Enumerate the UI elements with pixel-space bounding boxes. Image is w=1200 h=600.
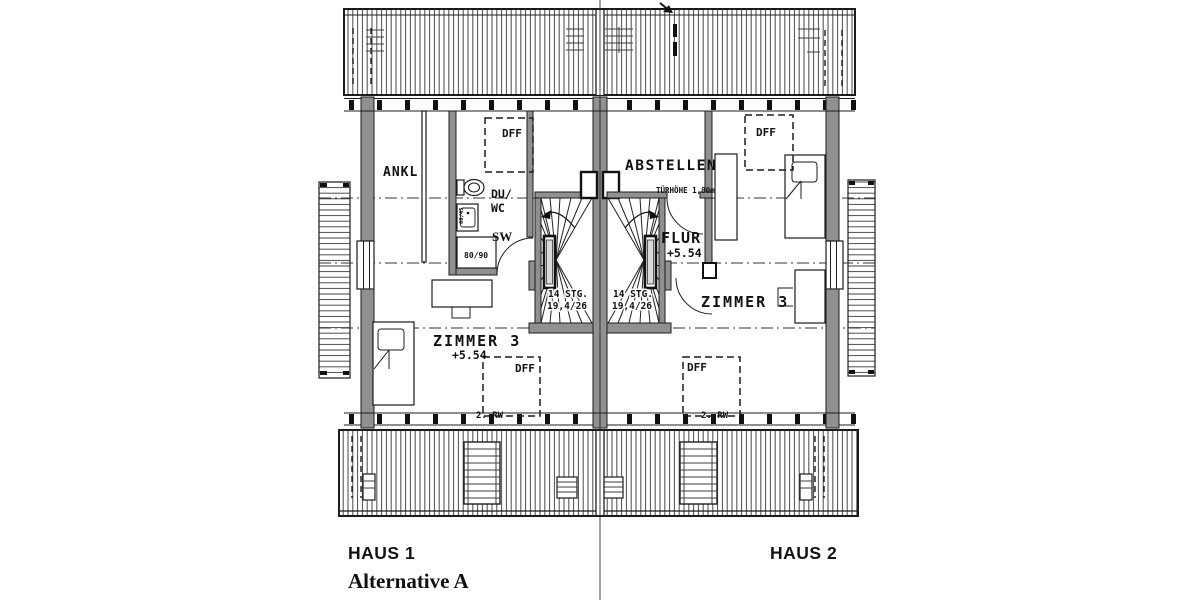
desk-haus2 [795,270,825,323]
bath-wall-right [527,111,533,237]
label-basin-size: 60/45 [459,207,465,224]
bath-wall-bottom [456,268,497,275]
outer-wall-right [826,111,843,413]
haus2-interior [603,111,825,416]
label-zimmer-h2: ZIMMER 3 [701,293,789,311]
roof-ladder-left [464,442,500,504]
title-haus2: HAUS 2 [770,543,837,563]
label-flur: FLUR [661,229,701,247]
label-rw-h2: 2. RW [701,411,729,421]
title-alternative: Alternative A [348,569,470,593]
eave-hatch-left [319,182,350,378]
label-stairs-h2-line2: 19,4/26 [612,301,652,312]
label-rw-h1: 2. RW [476,411,504,421]
bed-haus2 [785,155,825,238]
label-stairs-h1-line2: 19,4/26 [547,301,587,312]
duct-niche [703,263,716,278]
label-shower-size: 80/90 [464,251,488,260]
label-dff-h2-top: DFF [756,126,776,139]
window-left [357,241,374,289]
desk-haus1 [432,280,492,307]
label-level-h1: +5.54 [452,348,487,362]
window-right [826,241,843,289]
label-level-h2: +5.54 [667,246,702,260]
label-stairs-h2-line1: 14 STG. [613,289,653,300]
chair-haus1 [452,307,470,318]
bed-haus1 [373,322,414,405]
haus1-interior [373,111,597,416]
abstellen-wall [705,111,712,198]
closet-line [422,111,426,262]
label-sw: SW [492,229,512,244]
flur-wall [705,198,712,263]
label-door-height: TÜRHÖHE 1,80m [656,186,715,195]
label-du: DU/ [491,187,512,201]
label-wc: WC [491,201,505,215]
toilet [457,180,484,196]
title-haus1: HAUS 1 [348,543,415,563]
label-stairs-h1-line1: 14 STG. [548,289,588,300]
outer-wall-left [357,111,374,413]
floorplan-drawing: ANKL DFF DU/ WC SW 80/90 60/45 ZIMMER 3 … [0,0,1200,600]
label-abstellen: ABSTELLEN [625,158,717,174]
label-dff-h1-top: DFF [502,127,522,140]
roof-ladder-right [680,442,717,504]
floorplan-page: ANKL DFF DU/ WC SW 80/90 60/45 ZIMMER 3 … [0,0,1200,600]
label-dff-h1-bottom: DFF [515,362,535,375]
wardrobe-haus2 [715,154,737,240]
label-dff-h2-bottom: DFF [687,361,707,374]
bath-wall-left [449,111,456,275]
label-ankl: ANKL [383,165,418,180]
eave-hatch-right [848,180,875,376]
